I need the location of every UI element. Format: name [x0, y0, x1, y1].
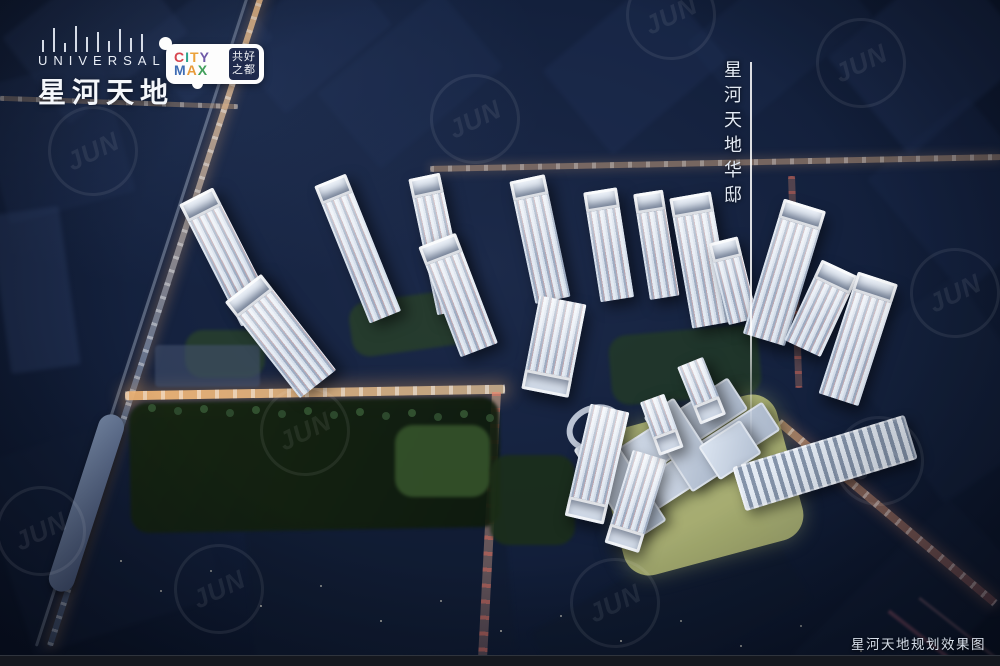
callout-leader-line — [750, 62, 752, 440]
image-caption: 星河天地规划效果图 — [851, 633, 986, 653]
bottom-border-bar — [0, 655, 1000, 666]
watermark-text: JUN — [639, 0, 702, 41]
watermark-text: JUN — [443, 93, 506, 145]
tagline-line2: 之都 — [232, 64, 256, 77]
badge-tagline: 共好 之都 — [229, 48, 259, 80]
aerial-night-rendering: JUN JUN JUN JUN JUN JUN JUN JUN JUN JUN … — [0, 0, 1000, 666]
tower-callout-label: 星河天地华邸 — [719, 60, 745, 210]
street-lights — [120, 560, 122, 562]
watermark-text: JUN — [847, 435, 910, 487]
park-lawn-bright — [395, 425, 490, 497]
watermark-text: JUN — [923, 267, 986, 319]
watermark-text: JUN — [583, 577, 646, 629]
watermark-text: JUN — [187, 563, 250, 615]
watermark-text: JUN — [61, 125, 124, 177]
tagline-line1: 共好 — [232, 51, 256, 64]
citymax-line-max: MAX — [174, 64, 210, 77]
street-trees — [148, 404, 156, 412]
watermark-text: JUN — [9, 505, 72, 557]
courtyard-green — [490, 455, 575, 545]
citymax-badge: CITY MAX 共好 之都 — [166, 44, 264, 84]
parking-lot — [155, 345, 260, 387]
watermark-text: JUN — [273, 405, 336, 457]
citymax-wordmark: CITY MAX — [174, 51, 210, 77]
watermark-text: JUN — [829, 37, 892, 89]
